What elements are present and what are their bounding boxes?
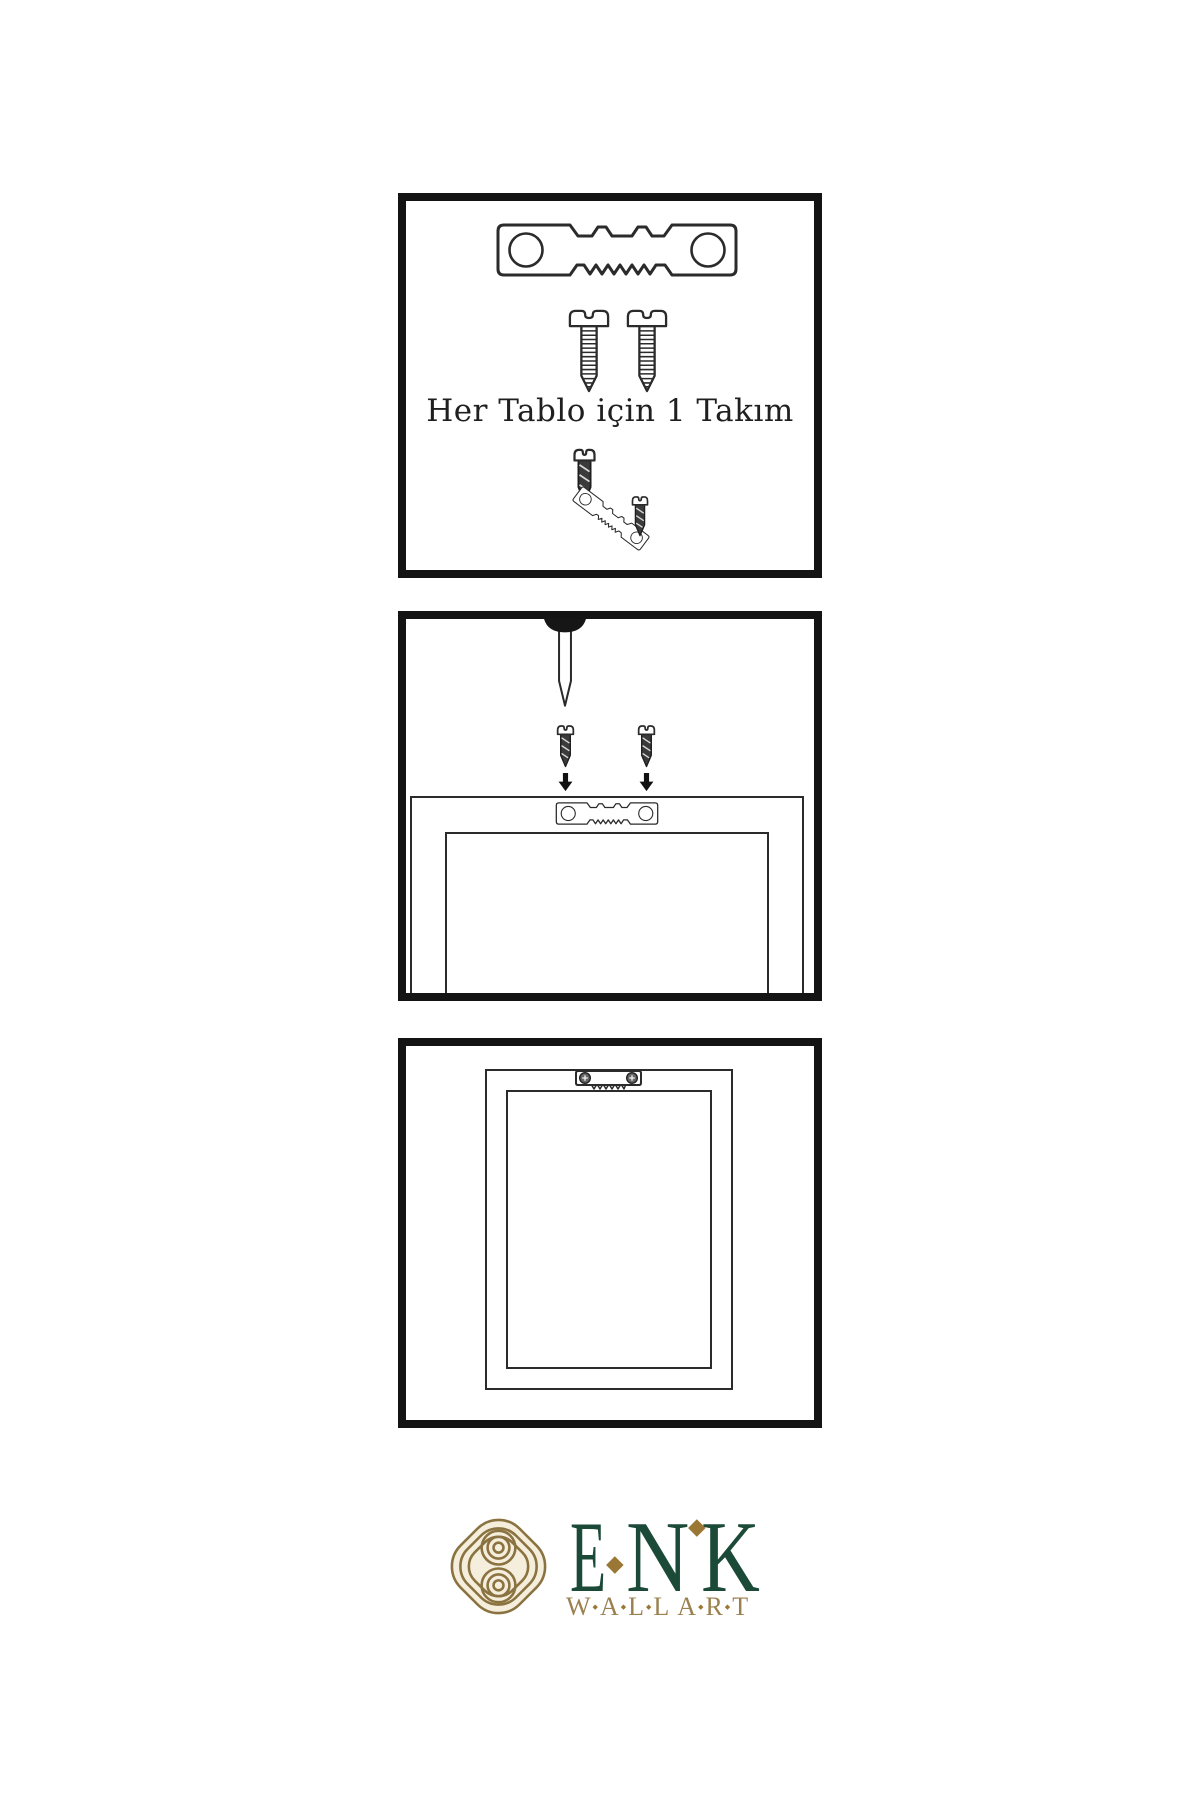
diamond-accent-icon: ◆ — [606, 1552, 624, 1576]
subtitle-letter: T — [732, 1592, 748, 1622]
diamond-separator-icon: ◆ — [621, 1602, 626, 1612]
diamond-separator-icon: ◆ — [725, 1602, 730, 1612]
mounted-sawtooth-hanger-icon — [575, 1070, 642, 1091]
screw-icon — [626, 304, 668, 396]
subtitle-word: W◆A◆L◆L — [566, 1592, 669, 1622]
screw-hanger-assembly — [556, 441, 686, 567]
subtitle-letter: W — [566, 1592, 591, 1622]
step-3-panel — [398, 1038, 822, 1428]
page: Her Tablo için 1 Takım ENK◆◆ W◆A◆L◆LA◆R◆… — [0, 0, 1200, 1800]
dark-screw-icon — [555, 723, 576, 770]
logo-subtitle: W◆A◆L◆LA◆R◆T — [566, 1592, 744, 1622]
subtitle-word: A◆R◆T — [677, 1592, 748, 1622]
subtitle-letter: L — [653, 1592, 669, 1622]
step-2-panel — [398, 611, 822, 1001]
dark-screw-icon — [630, 494, 650, 539]
down-arrow-icon — [558, 773, 573, 792]
wall-nail-icon — [543, 618, 587, 709]
diamond-separator-icon: ◆ — [593, 1602, 598, 1612]
dark-screw-icon — [636, 723, 657, 770]
diamond-accent-icon: ◆ — [688, 1515, 706, 1539]
down-arrow-icon — [639, 773, 654, 792]
sawtooth-hanger-icon — [496, 223, 738, 277]
frame-back-inner — [445, 832, 769, 1001]
knot-icon — [437, 1500, 560, 1633]
subtitle-letter: A — [600, 1592, 619, 1622]
sawtooth-hanger-icon — [555, 802, 659, 825]
step-1-panel: Her Tablo için 1 Takım — [398, 193, 822, 578]
subtitle-letter: L — [628, 1592, 644, 1622]
screw-icon — [568, 304, 610, 396]
subtitle-letter: A — [677, 1592, 696, 1622]
kit-caption: Her Tablo için 1 Takım — [406, 391, 814, 431]
diamond-separator-icon: ◆ — [646, 1602, 651, 1612]
diamond-separator-icon: ◆ — [698, 1602, 703, 1612]
subtitle-letter: R — [705, 1592, 722, 1622]
hung-frame-inner — [506, 1090, 712, 1369]
